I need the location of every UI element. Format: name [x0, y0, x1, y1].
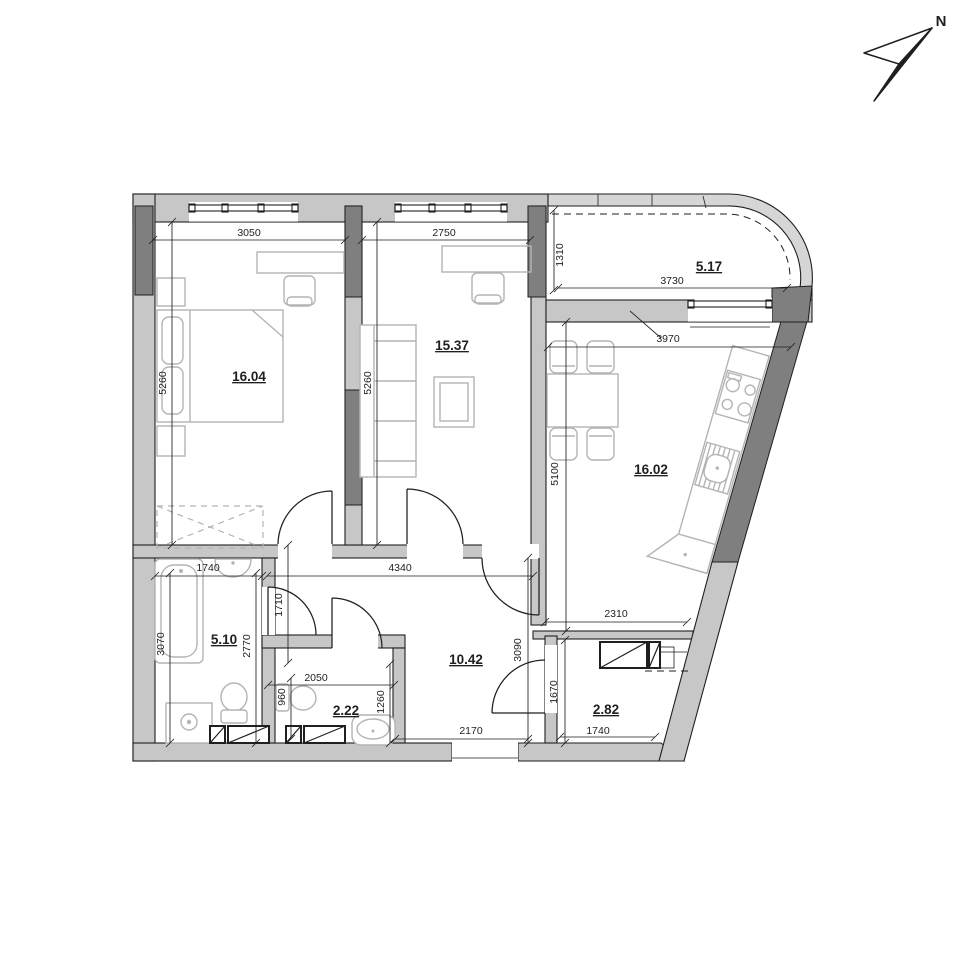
- label-wardrobe-area: 2.82: [593, 702, 619, 717]
- wall-bathroom-right: [262, 558, 275, 743]
- opening-bedroom-door: [278, 544, 332, 559]
- dim-hallway-depth: 3090: [512, 638, 524, 662]
- bathroom-toilet: [221, 683, 247, 723]
- dim-bedroom-depth: 5260: [157, 371, 169, 395]
- vent-bathroom: [210, 726, 269, 743]
- opening-entrance: [452, 742, 518, 762]
- floor-plan-drawing: 3050 2750 3730 3970 1310 5260 5260 5100 …: [0, 0, 960, 960]
- label-bathroom-area: 5.10: [211, 632, 237, 647]
- opening-living-door: [407, 544, 463, 559]
- poche-balcony-corner: [772, 286, 812, 322]
- wall-bottom-right: [518, 743, 684, 761]
- opening-wc-door: [332, 634, 378, 649]
- floor-plan-page: 3050 2750 3730 3970 1310 5260 5260 5100 …: [0, 0, 960, 960]
- dim-kitchen-depth: 5100: [549, 462, 561, 486]
- dim-balcony-depth: 1310: [554, 243, 566, 267]
- vent-wc: [286, 726, 345, 743]
- label-wc-area: 2.22: [333, 703, 359, 718]
- dim-bathroom-inner-depth: 2770: [241, 634, 253, 658]
- washing-machine: [166, 703, 212, 743]
- label-hallway-area: 10.42: [449, 652, 483, 667]
- nightstand-top: [157, 278, 185, 306]
- dim-wc-depth: 1260: [375, 690, 387, 714]
- dim-wardrobe-room-width: 1740: [586, 725, 610, 737]
- poche-mid-wall-top: [345, 206, 362, 297]
- opening-kitchen-door: [482, 544, 539, 559]
- dim-living-width: 2750: [432, 227, 456, 239]
- dim-wc-niche-depth: 960: [276, 688, 288, 706]
- dim-wardrobe-room-depth: 1670: [548, 680, 560, 704]
- label-kitchen-area: 16.02: [634, 462, 668, 477]
- dim-hallway-niche-depth: 1710: [273, 593, 285, 617]
- sofa: [360, 325, 416, 477]
- bed: [157, 310, 283, 422]
- nightstand-bottom: [157, 426, 185, 456]
- label-balcony-area: 5.17: [696, 259, 722, 274]
- recess-kitchen-window: [688, 298, 772, 322]
- poche-left-top: [135, 206, 153, 295]
- dim-kitchen-top-width: 3970: [656, 333, 680, 345]
- dim-living-depth: 5260: [362, 371, 374, 395]
- dim-balcony-width: 3730: [660, 275, 684, 287]
- north-label: N: [936, 13, 947, 30]
- dim-hallway-bottom-width: 2170: [459, 725, 483, 737]
- dim-kitchen-bottom-width: 2310: [604, 608, 628, 620]
- dim-hallway-top-width: 4340: [388, 562, 412, 574]
- dim-bedroom-width: 3050: [237, 227, 261, 239]
- wc-sink: [352, 715, 395, 745]
- dim-bathroom-width: 1740: [196, 562, 220, 574]
- label-living-area: 15.37: [435, 338, 469, 353]
- wall-bottom-left: [133, 743, 452, 761]
- label-bedroom-area: 16.04: [232, 369, 266, 384]
- dim-bathroom-depth: 3070: [155, 632, 167, 656]
- dim-wc-width: 2050: [304, 672, 328, 684]
